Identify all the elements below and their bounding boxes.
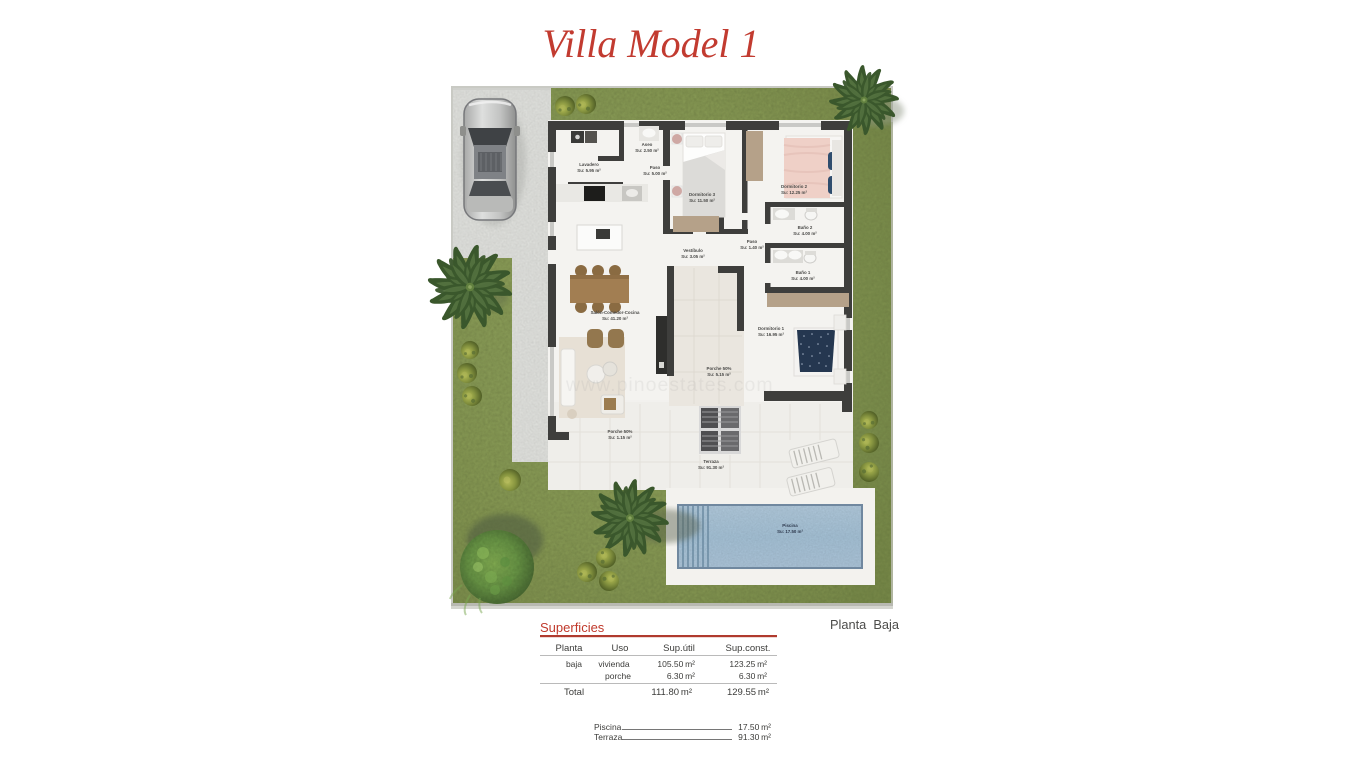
svg-text:Salón-Comedor-Cocina: Salón-Comedor-Cocina <box>591 310 640 315</box>
svg-text:Su: 5.15 m²: Su: 5.15 m² <box>707 372 731 377</box>
svg-text:Su: 41.20 m²: Su: 41.20 m² <box>602 316 628 321</box>
svg-text:Paso: Paso <box>650 165 661 170</box>
svg-text:Su: 4.00 m²: Su: 4.00 m² <box>791 276 815 281</box>
svg-text:Baño 1: Baño 1 <box>796 270 811 275</box>
svg-text:Paso: Paso <box>747 239 758 244</box>
svg-text:Su: 5.00 m²: Su: 5.00 m² <box>643 171 667 176</box>
svg-text:Vestíbulo: Vestíbulo <box>683 248 703 253</box>
svg-text:111.80 m²: 111.80 m² <box>651 687 692 698</box>
svg-text:123.25 m²: 123.25 m² <box>729 659 767 669</box>
svg-text:Baño 2: Baño 2 <box>798 225 813 230</box>
svg-text:Piscina: Piscina <box>782 523 798 528</box>
svg-text:Su: 12.25 m²: Su: 12.25 m² <box>781 190 807 195</box>
svg-text:baja: baja <box>566 659 582 669</box>
svg-text:Su: 17.50 m²: Su: 17.50 m² <box>777 529 803 534</box>
svg-text:Su: 1.40 m²: Su: 1.40 m² <box>740 245 764 250</box>
svg-text:Lavadero: Lavadero <box>579 162 599 167</box>
svg-text:Uso: Uso <box>612 643 629 654</box>
svg-text:Su: 2.50 m²: Su: 2.50 m² <box>635 148 659 153</box>
svg-text:Su: 3.05 m²: Su: 3.05 m² <box>681 254 705 259</box>
svg-text:Su: 1.15 m²: Su: 1.15 m² <box>608 435 632 440</box>
svg-text:105.50 m²: 105.50 m² <box>657 659 695 669</box>
svg-text:Porche 50%: Porche 50% <box>608 429 633 434</box>
svg-text:Sup.útil: Sup.útil <box>663 643 695 654</box>
svg-text:Piscina: Piscina <box>594 722 622 732</box>
svg-text:Terraza: Terraza <box>594 732 623 742</box>
svg-text:Total: Total <box>564 687 584 698</box>
svg-text:Dormitorio 1: Dormitorio 1 <box>758 326 785 331</box>
svg-text:129.55 m²: 129.55 m² <box>727 687 769 698</box>
svg-text:Planta Baja: Planta Baja <box>830 617 900 632</box>
svg-text:Dormitorio 3: Dormitorio 3 <box>689 192 716 197</box>
svg-text:Superficies: Superficies <box>540 620 605 635</box>
svg-text:6.30 m²: 6.30 m² <box>739 671 767 681</box>
svg-text:Su: 4.00 m²: Su: 4.00 m² <box>793 231 817 236</box>
svg-text:Su: 16.95 m²: Su: 16.95 m² <box>758 332 784 337</box>
svg-text:Porche 50%: Porche 50% <box>707 366 732 371</box>
svg-text:Terraza: Terraza <box>703 459 719 464</box>
svg-text:6.30 m²: 6.30 m² <box>667 671 695 681</box>
svg-text:Su: 11.50 m²: Su: 11.50 m² <box>689 198 715 203</box>
svg-text:91.30 m²: 91.30 m² <box>738 732 771 742</box>
svg-text:porche: porche <box>605 671 631 681</box>
svg-text:www.pinoestates.com: www.pinoestates.com <box>565 374 774 396</box>
svg-text:17.50 m²: 17.50 m² <box>738 722 771 732</box>
svg-text:vivienda: vivienda <box>598 659 629 669</box>
svg-text:Su: 91.30 m²: Su: 91.30 m² <box>698 465 724 470</box>
svg-text:Sup.const.: Sup.const. <box>726 643 771 654</box>
svg-text:Planta: Planta <box>556 643 584 654</box>
svg-text:Aseo: Aseo <box>642 142 653 147</box>
svg-text:Su: 5.95 m²: Su: 5.95 m² <box>577 168 601 173</box>
svg-text:Dormitorio 2: Dormitorio 2 <box>781 184 808 189</box>
svg-text:Villa Model 1: Villa Model 1 <box>543 21 760 66</box>
